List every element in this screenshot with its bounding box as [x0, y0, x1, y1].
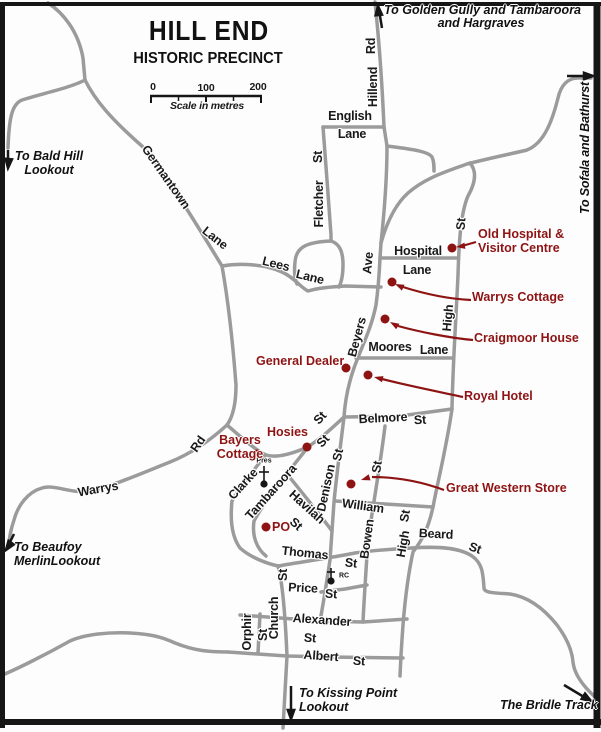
craigmoor-arrow — [398, 326, 473, 340]
poi-label-bayers-cottage: Bayers Cottage — [214, 434, 266, 461]
street-label-hillend-rd: Rd — [364, 38, 378, 54]
old-hospital-dot — [448, 244, 457, 253]
poi-arrowheads — [360, 243, 465, 483]
poi-label-royal-hotel: Royal Hotel — [464, 390, 533, 404]
poi-label-warrys-cottage: Warrys Cottage — [472, 291, 564, 305]
road-germantown-north — [48, 3, 85, 80]
street-label-price: Price — [288, 580, 318, 596]
poi-label-craigmoor-house: Craigmoor House — [474, 332, 579, 346]
poi-label-old-hospital: Old Hospital & Visitor Centre — [478, 228, 564, 255]
warrys-cottage-dot — [388, 278, 397, 287]
road-church — [278, 566, 287, 728]
poi-label-hosies: Hosies — [267, 426, 308, 440]
craigmoor-arrowhead — [388, 319, 399, 329]
street-label-bowen-st: St — [369, 460, 385, 474]
royal-hotel-arrowhead — [373, 374, 383, 382]
street-label-alexander-st: St — [303, 631, 316, 646]
road-beard — [412, 547, 594, 696]
road-to-bald-hill — [8, 80, 85, 148]
direction-kissing-point: To Kissing Point Lookout — [299, 686, 397, 714]
direction-kissing-point-line1: To Kissing Point — [299, 686, 397, 700]
bridle-track-arrow — [564, 685, 584, 697]
street-label-thomas-st: St — [344, 555, 358, 570]
street-label-moores: Moores — [368, 340, 411, 354]
poi-label-great-western: Great Western Store — [446, 482, 567, 496]
street-label-english: English — [328, 109, 372, 123]
street-label-orphir: Orphir — [240, 614, 254, 651]
direction-sofala: To Sofala and Bathurst — [578, 82, 592, 214]
street-label-beyers-ave: Ave — [360, 251, 376, 274]
direction-beaufoy-line1: To Beaufoy — [14, 541, 100, 555]
street-label-belmore: Belmore — [358, 410, 407, 427]
direction-golden-gully-line2: and Hargraves — [384, 17, 578, 30]
road-high-north — [452, 163, 475, 408]
great-western-arrow — [372, 477, 444, 490]
street-label-hospital-lane: Lane — [403, 263, 431, 277]
street-label-moores-lane: Lane — [420, 343, 448, 357]
direction-bridle-track: The Bridle Track — [500, 699, 598, 713]
street-label-fletcher-st: St — [311, 151, 325, 163]
street-label-orphir-st: St — [256, 629, 270, 641]
street-label-denison-st: St — [330, 448, 346, 463]
hill-end-map: HILL END HISTORIC PRECINCT 0 100 200 Sca… — [0, 0, 601, 732]
royal-hotel-dot — [364, 371, 373, 380]
street-label-price-st: St — [325, 587, 338, 602]
great-western-dot — [347, 480, 356, 489]
street-label-beard: Beard — [418, 526, 453, 542]
warrys-cottage-arrow — [403, 287, 471, 300]
scale-label-100: 100 — [198, 82, 215, 94]
poi-arrows — [372, 242, 476, 490]
street-label-church-st: St — [276, 569, 290, 581]
direction-beaufoy-line2: MerlinLookout — [14, 555, 100, 569]
direction-kissing-point-line2: Lookout — [299, 700, 397, 714]
great-western-arrowhead — [360, 474, 370, 483]
poi-label-general-dealer: General Dealer — [256, 355, 344, 369]
direction-beaufoy: To Beaufoy MerlinLookout — [14, 541, 100, 568]
street-label-albert: Albert — [303, 648, 339, 664]
street-label-fletcher: Fletcher — [312, 180, 326, 227]
road-fletcher-loop-right — [331, 241, 343, 287]
map-subtitle: HISTORIC PRECINCT — [133, 50, 282, 68]
road-germantown-south — [222, 266, 236, 425]
hosies-dot — [303, 443, 312, 452]
poi-label-bayers-line2: Cottage — [214, 448, 266, 462]
scale-label-0: 0 — [150, 81, 156, 93]
po-dot — [262, 523, 271, 532]
map-title: HILL END — [149, 15, 269, 47]
street-label-hospital: Hospital — [394, 244, 442, 258]
rc-church-label: RC — [339, 573, 349, 580]
rc-church-icon — [328, 578, 334, 584]
street-label-belmore-st: St — [414, 413, 427, 428]
street-label-high-north: High — [440, 304, 456, 332]
direction-golden-gully: To Golden Gully and Tambaroora and Hargr… — [384, 4, 578, 30]
road-sofala — [381, 78, 591, 243]
poi-label-po: PO — [272, 521, 290, 535]
direction-bald-hill-line2: Lookout — [11, 164, 87, 178]
road-hillend-connector — [387, 146, 434, 171]
kissing-point-arrowhead — [288, 710, 294, 719]
direction-bald-hill: To Bald Hill Lookout — [11, 150, 87, 177]
street-label-albert-st: St — [352, 654, 365, 669]
poi-label-old-hospital-line2: Visitor Centre — [478, 242, 564, 256]
direction-bald-hill-line1: To Bald Hill — [11, 150, 87, 164]
craigmoor-dot — [381, 315, 390, 324]
poi-label-bayers-line1: Bayers — [214, 434, 266, 448]
poi-label-old-hospital-line1: Old Hospital & — [478, 228, 564, 242]
road-albert-west — [0, 633, 228, 676]
street-label-high-north-st: St — [453, 217, 468, 230]
scale-label-200: 200 — [250, 81, 267, 93]
street-label-hillend: Hillend — [366, 67, 380, 107]
street-label-high-south-st: St — [397, 509, 413, 523]
scale-caption: Scale in metres — [170, 100, 244, 112]
street-label-english-lane: Lane — [338, 127, 366, 141]
